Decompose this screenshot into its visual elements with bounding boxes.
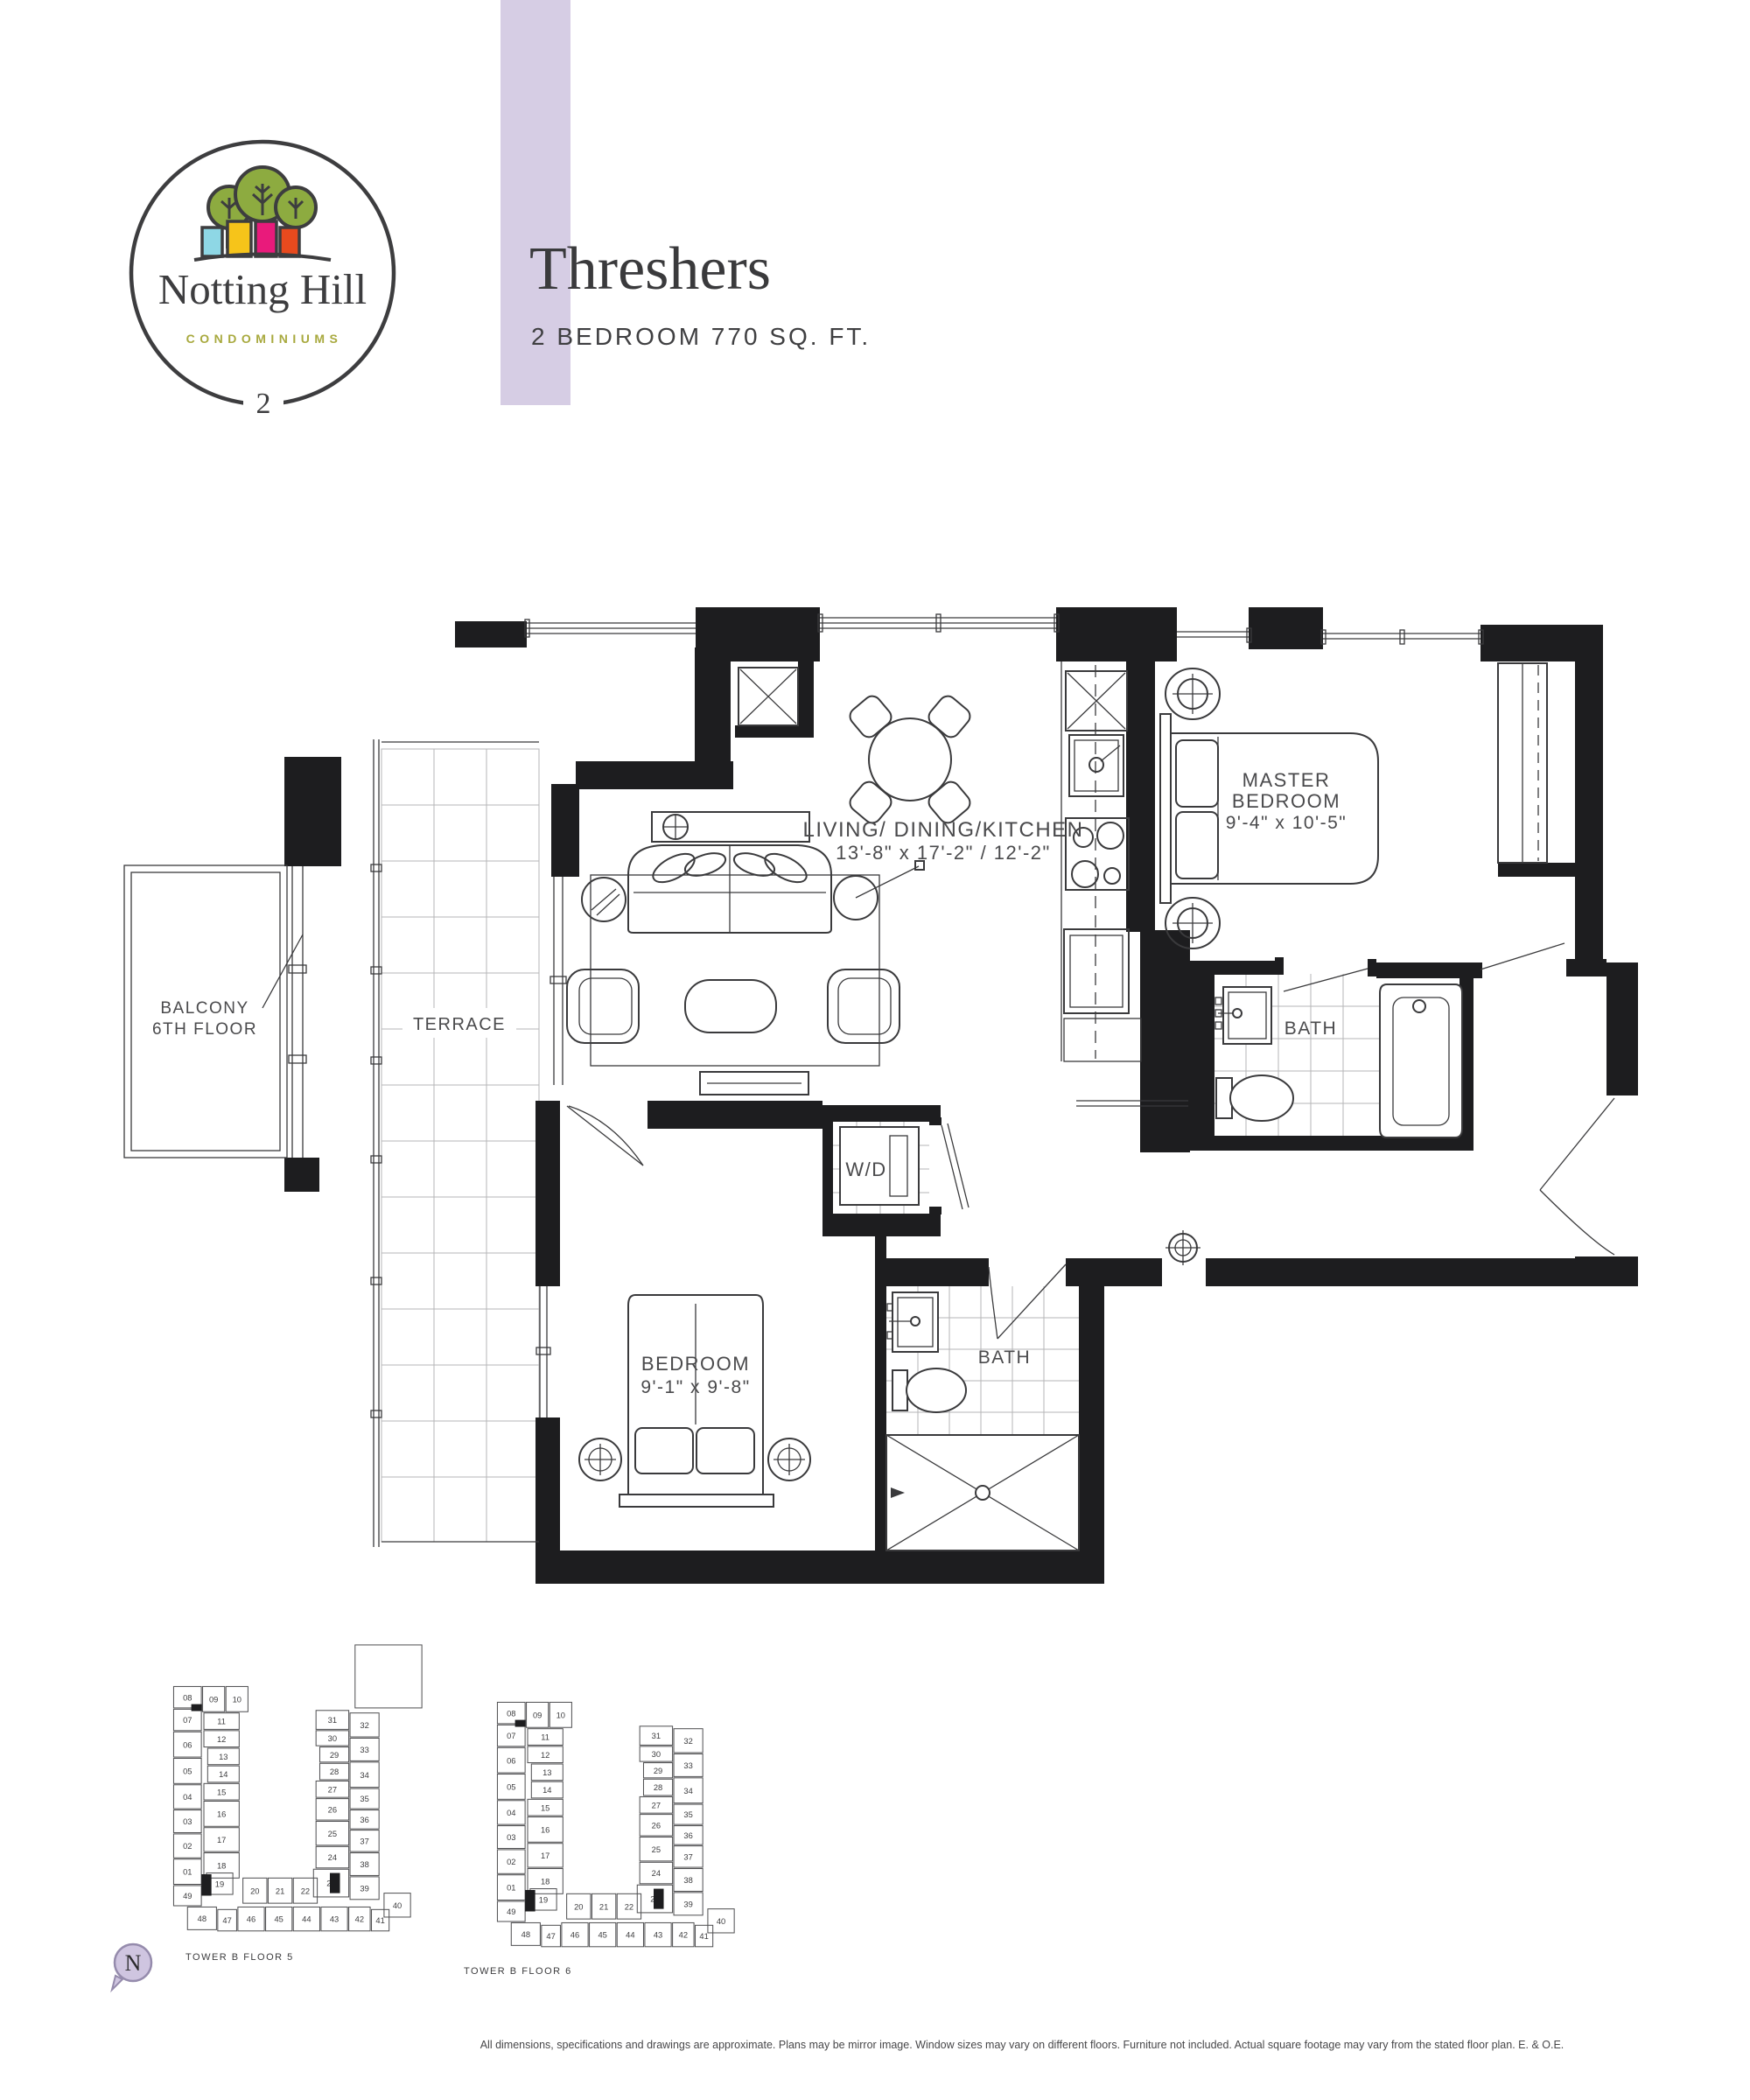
svg-text:31: 31	[652, 1732, 661, 1740]
svg-text:14: 14	[542, 1786, 551, 1795]
balcony-label-2: 6TH FLOOR	[152, 1020, 257, 1039]
kitchen-sink-icon	[1069, 735, 1123, 796]
svg-text:12: 12	[217, 1735, 226, 1744]
master-closet	[1498, 663, 1547, 863]
bathtub-icon	[1380, 984, 1462, 1137]
keyplan-floor6: 0809100711121314150605041603170218011949…	[497, 1702, 734, 1946]
svg-text:09: 09	[533, 1711, 542, 1719]
bedroom-label: BEDROOM	[641, 1353, 750, 1375]
logo-sub: CONDOMINIUMS	[186, 332, 343, 346]
svg-text:19: 19	[215, 1879, 224, 1888]
svg-text:27: 27	[652, 1801, 661, 1809]
svg-text:25: 25	[652, 1845, 661, 1854]
svg-text:29: 29	[654, 1767, 662, 1775]
logo-name: Notting Hill	[158, 265, 367, 313]
svg-text:16: 16	[217, 1809, 226, 1818]
svg-text:35: 35	[360, 1795, 368, 1803]
svg-text:15: 15	[541, 1803, 549, 1812]
armchair	[567, 969, 639, 1043]
svg-text:33: 33	[360, 1746, 368, 1754]
keyplan-caption-2: TOWER B FLOOR 6	[464, 1966, 572, 1977]
svg-text:30: 30	[328, 1734, 337, 1743]
svg-text:33: 33	[683, 1761, 692, 1770]
svg-text:11: 11	[541, 1733, 549, 1742]
svg-text:46: 46	[570, 1931, 579, 1940]
svg-text:13: 13	[219, 1753, 227, 1761]
svg-text:04: 04	[183, 1793, 192, 1802]
svg-text:03: 03	[183, 1817, 192, 1826]
wd-label: W/D	[845, 1158, 886, 1180]
north-compass-icon: N	[112, 1944, 151, 1990]
svg-text:39: 39	[683, 1900, 692, 1908]
floorplan-page: Notting Hill CONDOMINIUMS 2 Threshers 2 …	[0, 0, 1750, 2100]
svg-text:39: 39	[360, 1884, 368, 1893]
terrace-label: TERRACE	[413, 1015, 506, 1034]
page-subtitle: 2 BEDROOM 770 SQ. FT.	[531, 323, 871, 350]
svg-text:45: 45	[274, 1915, 283, 1924]
svg-text:45: 45	[598, 1931, 606, 1940]
svg-text:11: 11	[217, 1718, 226, 1726]
svg-text:34: 34	[360, 1771, 368, 1780]
master-bath-fixtures	[1215, 984, 1462, 1137]
svg-text:02: 02	[507, 1858, 515, 1866]
svg-text:36: 36	[683, 1831, 692, 1840]
svg-text:05: 05	[507, 1783, 515, 1792]
living-dims: 13'-8" x 17'-2" / 12'-2"	[836, 842, 1051, 864]
svg-text:01: 01	[507, 1884, 515, 1893]
plan-canvas: Notting Hill CONDOMINIUMS 2 Threshers 2 …	[0, 0, 1750, 2100]
svg-text:37: 37	[360, 1837, 368, 1845]
svg-text:07: 07	[507, 1732, 515, 1740]
svg-text:22: 22	[625, 1902, 633, 1911]
svg-text:43: 43	[330, 1915, 339, 1924]
svg-text:43: 43	[654, 1931, 662, 1940]
page-title: Threshers	[529, 235, 771, 303]
bath2-label: BATH	[978, 1347, 1031, 1368]
hall-bath-fixtures	[886, 1292, 1079, 1550]
svg-text:05: 05	[183, 1767, 192, 1776]
svg-text:09: 09	[209, 1695, 218, 1704]
dining-set	[846, 693, 973, 827]
svg-text:25: 25	[328, 1830, 337, 1838]
svg-text:02: 02	[183, 1842, 192, 1851]
svg-text:08: 08	[183, 1693, 192, 1702]
master-label-1: MASTER	[1242, 769, 1331, 791]
svg-text:21: 21	[599, 1902, 608, 1911]
master-dims: 9'-4" x 10'-5"	[1226, 813, 1347, 833]
svg-text:34: 34	[683, 1787, 692, 1795]
svg-text:07: 07	[183, 1716, 192, 1725]
svg-text:48: 48	[521, 1930, 530, 1939]
svg-text:16: 16	[541, 1825, 549, 1834]
svg-text:06: 06	[507, 1756, 515, 1765]
master-label-2: BEDROOM	[1232, 790, 1340, 812]
svg-text:12: 12	[541, 1751, 549, 1760]
houses-icon	[194, 221, 331, 260]
svg-text:42: 42	[679, 1931, 688, 1940]
svg-text:38: 38	[683, 1876, 692, 1885]
svg-text:46: 46	[247, 1915, 255, 1924]
svg-text:27: 27	[328, 1785, 337, 1794]
svg-text:47: 47	[222, 1916, 231, 1925]
svg-text:28: 28	[654, 1783, 662, 1792]
balcony-label-1: BALCONY	[160, 999, 248, 1018]
svg-text:36: 36	[360, 1816, 368, 1824]
svg-text:41: 41	[375, 1916, 384, 1925]
terrace-tiles	[381, 749, 539, 1542]
svg-text:19: 19	[539, 1895, 548, 1904]
svg-text:44: 44	[302, 1915, 311, 1924]
vanity-icon	[892, 1292, 938, 1352]
svg-text:35: 35	[683, 1810, 692, 1819]
keyplan-floor5: 0809100711121314150605041603170218011949…	[173, 1645, 422, 1931]
svg-text:24: 24	[652, 1869, 661, 1878]
svg-text:41: 41	[699, 1932, 708, 1941]
svg-text:04: 04	[507, 1809, 515, 1817]
svg-text:20: 20	[250, 1886, 259, 1895]
sofa	[628, 845, 831, 933]
keyplan-caption-1: TOWER B FLOOR 5	[185, 1952, 294, 1963]
svg-text:18: 18	[541, 1878, 549, 1886]
svg-text:32: 32	[360, 1721, 368, 1730]
svg-text:47: 47	[546, 1932, 555, 1941]
svg-text:24: 24	[328, 1853, 337, 1862]
svg-text:22: 22	[301, 1886, 310, 1895]
bath1-label: BATH	[1284, 1018, 1337, 1039]
svg-text:06: 06	[183, 1740, 192, 1749]
svg-text:49: 49	[507, 1907, 515, 1916]
svg-text:20: 20	[574, 1902, 583, 1911]
svg-text:40: 40	[717, 1917, 725, 1926]
svg-text:28: 28	[330, 1767, 339, 1776]
compass-n: N	[125, 1950, 142, 1976]
svg-text:32: 32	[683, 1737, 692, 1746]
svg-text:21: 21	[276, 1886, 284, 1895]
svg-text:26: 26	[652, 1821, 661, 1830]
svg-text:01: 01	[183, 1868, 192, 1877]
svg-text:42: 42	[355, 1915, 364, 1924]
toilet-icon	[892, 1370, 907, 1410]
svg-text:26: 26	[328, 1805, 337, 1814]
vanity-icon	[1223, 987, 1271, 1044]
svg-text:37: 37	[683, 1852, 692, 1861]
coffee-table	[685, 980, 776, 1032]
svg-text:44: 44	[626, 1931, 634, 1940]
notting-hill-logo: Notting Hill CONDOMINIUMS 2	[131, 142, 394, 420]
svg-text:15: 15	[217, 1788, 226, 1796]
svg-text:17: 17	[541, 1851, 549, 1860]
svg-text:29: 29	[330, 1751, 339, 1760]
svg-text:13: 13	[542, 1768, 551, 1777]
bedroom-dims: 9'-1" x 9'-8"	[640, 1377, 750, 1397]
living-label: LIVING/ DINING/KITCHEN	[802, 818, 1083, 842]
bedroom-bed	[619, 1295, 773, 1507]
svg-text:17: 17	[217, 1836, 226, 1844]
svg-text:08: 08	[507, 1709, 515, 1718]
fridge-icon	[1064, 929, 1129, 1013]
armchair	[828, 969, 899, 1043]
disclaimer-text: All dimensions, specifications and drawi…	[480, 2039, 1564, 2051]
svg-text:40: 40	[393, 1901, 402, 1910]
svg-text:03: 03	[507, 1833, 515, 1842]
svg-text:18: 18	[217, 1862, 226, 1871]
logo-tower-number: 2	[256, 388, 271, 420]
svg-text:48: 48	[198, 1914, 206, 1923]
svg-text:49: 49	[183, 1892, 192, 1900]
svg-text:14: 14	[219, 1770, 227, 1779]
svg-text:30: 30	[652, 1750, 661, 1759]
svg-text:10: 10	[556, 1711, 565, 1719]
unit-floor-plan: LIVING/ DINING/KITCHEN 13'-8" x 17'-2" /…	[124, 607, 1638, 1584]
svg-text:31: 31	[328, 1716, 337, 1725]
svg-text:10: 10	[233, 1695, 241, 1704]
svg-text:38: 38	[360, 1860, 368, 1869]
